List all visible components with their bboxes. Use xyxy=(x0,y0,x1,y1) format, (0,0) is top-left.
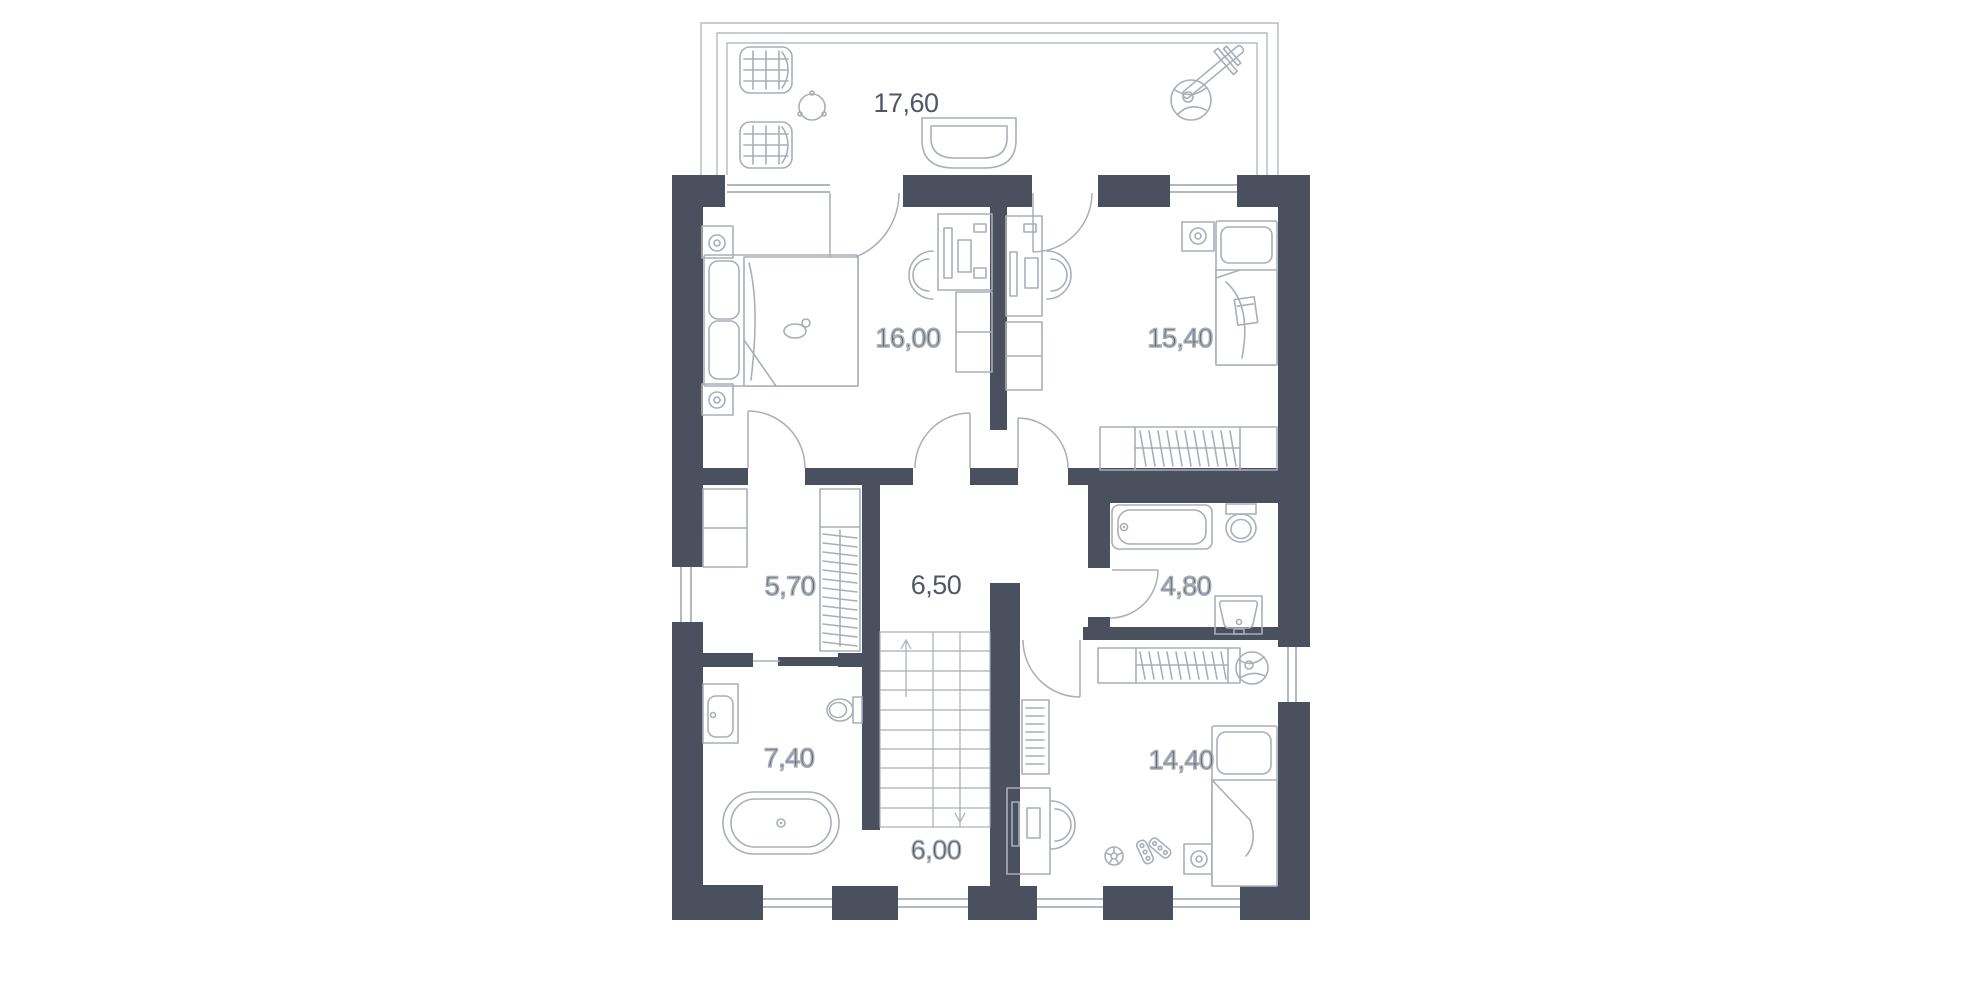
room-bathroom-large: 7,40 xyxy=(703,684,862,854)
single-bed-icon xyxy=(1216,221,1277,365)
door-terrace-to-bedroom-main-icon xyxy=(830,193,899,262)
room-label-bedroom-main: 16,00 xyxy=(875,323,940,353)
desk-icon xyxy=(938,214,992,290)
room-bedroom-kids: 14,40 xyxy=(1007,648,1277,886)
window-icon xyxy=(727,185,830,192)
door-hall-to-bathroom-small-icon xyxy=(1110,570,1158,618)
window-icon xyxy=(1288,647,1296,702)
bookshelf-icon xyxy=(1022,700,1049,774)
double-bed-icon xyxy=(704,255,858,386)
stairs-icon xyxy=(880,632,990,827)
toilet-icon xyxy=(827,697,862,723)
window-icon xyxy=(1037,899,1103,907)
bathtub-icon xyxy=(1112,505,1212,549)
room-label-hallway: 6,50 xyxy=(911,570,962,600)
shelving-unit-icon xyxy=(703,489,747,567)
room-label-bathroom-small: 4,80 xyxy=(1161,571,1212,601)
room-label-terrace: 17,60 xyxy=(873,88,938,118)
wicker-chair-icon xyxy=(740,47,792,93)
room-staircase: 6,00 xyxy=(880,632,990,865)
nightstand-lamp-icon xyxy=(1182,222,1214,251)
room-label-bedroom-kids: 14,40 xyxy=(1148,745,1213,775)
window-icon xyxy=(763,899,832,907)
door-hall-to-bedroom-second-icon xyxy=(1018,418,1068,468)
curved-bench-icon xyxy=(922,118,1016,168)
terrace: 17,60 xyxy=(701,23,1278,175)
sun-lounger-icon xyxy=(1174,36,1252,108)
room-label-bathroom-large: 7,40 xyxy=(764,743,815,773)
desk-chair-icon xyxy=(1047,251,1071,299)
room-hallway: 6,50 xyxy=(911,570,962,600)
window-icon xyxy=(681,567,691,622)
nightstand-lamp-icon xyxy=(702,226,733,258)
door-hall-to-bedroom-kids-icon xyxy=(1023,640,1080,697)
nightstand-lamp-icon xyxy=(702,384,733,415)
dresser-icon xyxy=(956,292,992,372)
room-label-staircase: 6,00 xyxy=(911,835,962,865)
sliding-door-leaf-icon xyxy=(778,657,840,666)
potted-plant-icon xyxy=(1236,652,1268,684)
room-bedroom-main: 16,00 xyxy=(702,214,992,415)
wardrobe-icon xyxy=(1100,427,1277,470)
room-bathroom-small: 4,80 xyxy=(1112,504,1262,634)
door-hall-to-bedroom-main-icon xyxy=(915,413,970,468)
wardrobe-icon xyxy=(820,489,860,651)
roller-skates-icon xyxy=(1135,836,1172,865)
wardrobe-icon xyxy=(1098,648,1240,683)
desk-chair-icon xyxy=(909,251,933,299)
freestanding-bathtub-icon xyxy=(723,792,839,854)
window-icon xyxy=(1173,899,1240,907)
round-side-table-icon xyxy=(798,91,826,120)
door-bedroom-main-to-closet-icon xyxy=(748,411,805,468)
window-icon xyxy=(1170,185,1237,192)
football-icon xyxy=(1105,847,1123,865)
toilet-icon xyxy=(1226,504,1256,542)
desk-chair-icon xyxy=(1051,801,1075,849)
window-icon xyxy=(898,899,968,907)
desk-icon xyxy=(1006,216,1042,316)
stairs-down-arrow-icon xyxy=(955,757,965,822)
single-bed-icon xyxy=(1212,726,1277,886)
room-bedroom-second: 15,40 xyxy=(1006,216,1277,470)
washbasin-icon xyxy=(703,684,738,743)
room-label-walk-in-closet: 5,70 xyxy=(765,571,816,601)
nightstand-lamp-icon xyxy=(1184,844,1215,874)
floor-plan-canvas: 17,60 xyxy=(0,0,1980,990)
room-walk-in-closet: 5,70 xyxy=(703,489,860,651)
wicker-chair-icon xyxy=(740,122,792,168)
dresser-icon xyxy=(1006,322,1042,390)
stairs-up-arrow-icon xyxy=(901,640,911,697)
room-label-bedroom-second: 15,40 xyxy=(1147,323,1212,353)
